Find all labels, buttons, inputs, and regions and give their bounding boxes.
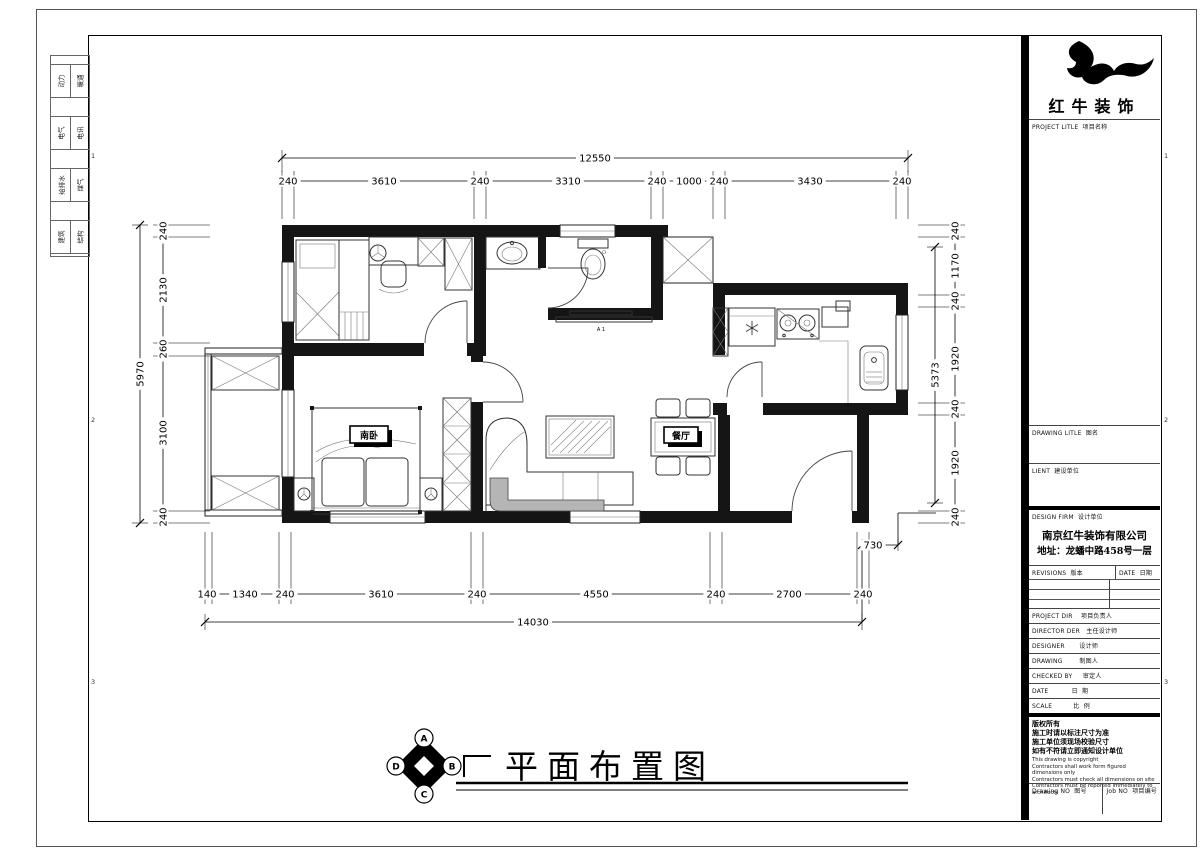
ceiling-fan-icon bbox=[370, 245, 386, 261]
study-wardrobe bbox=[418, 238, 472, 290]
balcony-cabinet-bottom bbox=[212, 476, 279, 510]
dimension-value: 730 bbox=[863, 541, 882, 552]
single-bed bbox=[296, 240, 339, 340]
dimension-value: 12550 bbox=[579, 154, 611, 165]
dimension-value: 240 bbox=[709, 177, 728, 188]
compass-n: A bbox=[421, 735, 428, 745]
dimension-value: 5373 bbox=[931, 362, 942, 387]
door-bathroom bbox=[548, 268, 588, 308]
window-kitchen-right bbox=[896, 315, 908, 390]
dimension-value: 2130 bbox=[159, 277, 170, 302]
compass-e: B bbox=[449, 763, 456, 773]
bathroom-partition bbox=[538, 237, 546, 268]
dimension-value: 240 bbox=[951, 507, 962, 526]
wash-basin bbox=[497, 241, 527, 264]
snowflake-icon bbox=[746, 321, 758, 335]
door-study bbox=[425, 301, 467, 343]
kitchen bbox=[713, 301, 888, 403]
dining-label: 餐厅 bbox=[664, 427, 702, 447]
balcony-bay bbox=[205, 348, 282, 516]
page-title: 平面布置图 bbox=[505, 747, 715, 786]
dimension-value: 1340 bbox=[232, 590, 257, 601]
dimension-value: 3310 bbox=[555, 177, 580, 188]
floor-plan-svg: A 1 bbox=[0, 0, 1200, 852]
pillow bbox=[322, 458, 364, 506]
dimension-value: 240 bbox=[951, 399, 962, 418]
dimension-value: 1000 bbox=[676, 177, 701, 188]
gas-stove bbox=[777, 309, 819, 339]
dimension-value: 240 bbox=[706, 590, 725, 601]
dimension-value: 5970 bbox=[136, 361, 147, 386]
study-room bbox=[296, 237, 472, 340]
dimension-value: 2700 bbox=[776, 590, 801, 601]
step-leader bbox=[862, 513, 936, 621]
door-entry bbox=[792, 451, 852, 511]
dining-room-label: 餐厅 bbox=[671, 430, 690, 442]
dimension-value: 3610 bbox=[368, 590, 393, 601]
dimension-value: 240 bbox=[275, 590, 294, 601]
rug bbox=[546, 416, 614, 458]
range-hood bbox=[822, 301, 850, 327]
dining-area: 餐厅 bbox=[651, 399, 715, 475]
dimension-value: 240 bbox=[951, 221, 962, 240]
door-kitchen bbox=[727, 362, 762, 397]
toilet bbox=[578, 239, 608, 279]
dimension-value: 14030 bbox=[517, 618, 549, 629]
window-study-left bbox=[282, 262, 294, 322]
dining-chair bbox=[686, 457, 710, 475]
dimension-value: 240 bbox=[159, 221, 170, 240]
dimension-value: 240 bbox=[470, 177, 489, 188]
pillow bbox=[366, 458, 408, 506]
balcony-cabinet-top bbox=[212, 356, 279, 390]
dimension-value: 3610 bbox=[371, 177, 396, 188]
sofa-armrest bbox=[490, 478, 604, 511]
dimension-value: 240 bbox=[159, 507, 170, 526]
drawing-sheet: 1 2 3 1 2 3 动力 暖通 电气 电讯 给排水 煤气 建筑 结构 红牛装… bbox=[0, 0, 1200, 852]
nightstand-right bbox=[420, 478, 442, 511]
dimension-value: 3430 bbox=[797, 177, 822, 188]
bed-side-cabinet bbox=[339, 240, 369, 340]
kitchen-sink bbox=[860, 346, 888, 390]
doors bbox=[425, 268, 852, 511]
dimension-value: 240 bbox=[647, 177, 666, 188]
desk-chair bbox=[379, 261, 408, 293]
dimension-value: 3100 bbox=[159, 420, 170, 445]
window-bedroom-left bbox=[282, 390, 294, 477]
dining-chair bbox=[686, 399, 710, 417]
dimension-value: 240 bbox=[853, 590, 872, 601]
windows bbox=[282, 225, 908, 523]
dimension-value: 240 bbox=[892, 177, 911, 188]
shaft-niche bbox=[663, 237, 713, 283]
master-bedroom: 南卧 bbox=[294, 398, 471, 514]
counter bbox=[819, 341, 848, 403]
window-bedroom-bottom bbox=[330, 511, 425, 523]
compass-s: C bbox=[421, 791, 428, 801]
dining-chair bbox=[656, 457, 680, 475]
dimension-value: 1920 bbox=[951, 346, 962, 371]
window-living-bottom bbox=[570, 511, 640, 523]
wardrobe bbox=[443, 398, 471, 511]
double-bed bbox=[310, 406, 422, 514]
compass-icon: A B C D bbox=[387, 729, 461, 803]
dining-chair bbox=[656, 399, 680, 417]
nightstand-left bbox=[294, 478, 314, 511]
dimension-value: 1170 bbox=[951, 253, 962, 278]
walls bbox=[282, 225, 908, 523]
dimension-value: 240 bbox=[951, 291, 962, 310]
dimension-value: 4550 bbox=[583, 590, 608, 601]
refrigerator bbox=[729, 308, 775, 346]
living-room bbox=[486, 416, 633, 512]
door-bedroom bbox=[483, 362, 523, 402]
compass-w: D bbox=[392, 763, 399, 773]
master-bedroom-label: 南卧 bbox=[360, 430, 378, 442]
dimension-value: 140 bbox=[197, 590, 216, 601]
bedroom-label: 南卧 bbox=[350, 426, 392, 447]
dimension-value: 240 bbox=[467, 590, 486, 601]
dimension-value: 1920 bbox=[951, 450, 962, 475]
window-bathroom-top bbox=[560, 225, 615, 237]
drawing-title-area: A B C D 平面布置图 bbox=[387, 729, 908, 803]
tv-mark: A 1 bbox=[597, 327, 605, 333]
bathroom bbox=[486, 237, 608, 279]
dimension-value: 240 bbox=[278, 177, 297, 188]
dimension-value: 260 bbox=[159, 339, 170, 358]
